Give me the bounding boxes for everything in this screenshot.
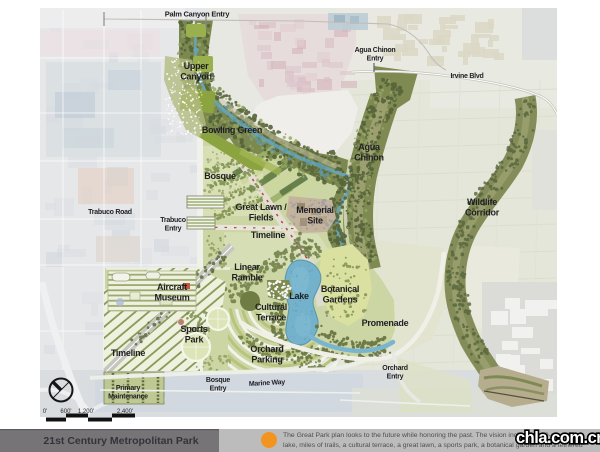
svg-text:0': 0' bbox=[43, 409, 47, 415]
svg-text:Entry: Entry bbox=[367, 56, 384, 63]
svg-text:Park: Park bbox=[185, 335, 205, 345]
svg-text:Agua: Agua bbox=[358, 142, 381, 152]
svg-text:Gardens: Gardens bbox=[323, 295, 358, 305]
svg-text:Sports: Sports bbox=[180, 324, 207, 334]
svg-text:Palm Canyon Entry: Palm Canyon Entry bbox=[165, 10, 231, 19]
svg-text:Agua Chinon: Agua Chinon bbox=[355, 47, 396, 54]
svg-text:Fields: Fields bbox=[249, 213, 274, 223]
svg-text:Parking: Parking bbox=[251, 355, 282, 365]
svg-text:Terrace: Terrace bbox=[256, 313, 286, 323]
svg-text:Maintenance: Maintenance bbox=[108, 394, 148, 401]
svg-text:Aircraft: Aircraft bbox=[157, 282, 187, 292]
svg-text:Bosque: Bosque bbox=[206, 377, 231, 384]
svg-text:Museum: Museum bbox=[154, 293, 189, 303]
svg-text:Canyon: Canyon bbox=[180, 72, 212, 82]
svg-text:Orchard: Orchard bbox=[250, 344, 283, 354]
svg-text:Chinon: Chinon bbox=[354, 153, 384, 163]
svg-text:Memorial: Memorial bbox=[296, 205, 334, 215]
svg-text:Ramble: Ramble bbox=[231, 273, 262, 283]
svg-text:Botanical: Botanical bbox=[321, 284, 359, 294]
svg-text:Trabuco Road: Trabuco Road bbox=[88, 209, 132, 216]
svg-text:21st Century Metropolitan Park: 21st Century Metropolitan Park bbox=[43, 435, 198, 447]
svg-text:chla.com.cn: chla.com.cn bbox=[516, 429, 600, 447]
svg-text:Bowling Green: Bowling Green bbox=[202, 125, 262, 135]
svg-text:Trabuco: Trabuco bbox=[160, 217, 185, 224]
svg-text:Timeline: Timeline bbox=[251, 230, 286, 240]
svg-text:Timeline: Timeline bbox=[111, 348, 146, 358]
svg-text:Lake: Lake bbox=[289, 291, 309, 301]
svg-text:Site: Site bbox=[307, 216, 323, 226]
svg-text:Primary: Primary bbox=[116, 385, 141, 392]
svg-text:Entry: Entry bbox=[210, 386, 227, 393]
svg-text:Promenade: Promenade bbox=[362, 318, 409, 328]
svg-text:Entry: Entry bbox=[387, 374, 404, 381]
svg-text:Linear: Linear bbox=[234, 262, 260, 272]
svg-text:Entry: Entry bbox=[165, 226, 182, 233]
svg-text:Great Lawn /: Great Lawn / bbox=[235, 202, 287, 212]
svg-text:Upper: Upper bbox=[184, 61, 210, 71]
svg-text:Wildlife: Wildlife bbox=[467, 197, 497, 207]
svg-text:Orchard: Orchard bbox=[382, 365, 407, 372]
svg-text:Irvine Blvd: Irvine Blvd bbox=[450, 73, 483, 80]
svg-text:Bosque: Bosque bbox=[204, 171, 236, 181]
svg-text:Cultural: Cultural bbox=[255, 302, 287, 312]
svg-text:Corridor: Corridor bbox=[465, 208, 500, 218]
